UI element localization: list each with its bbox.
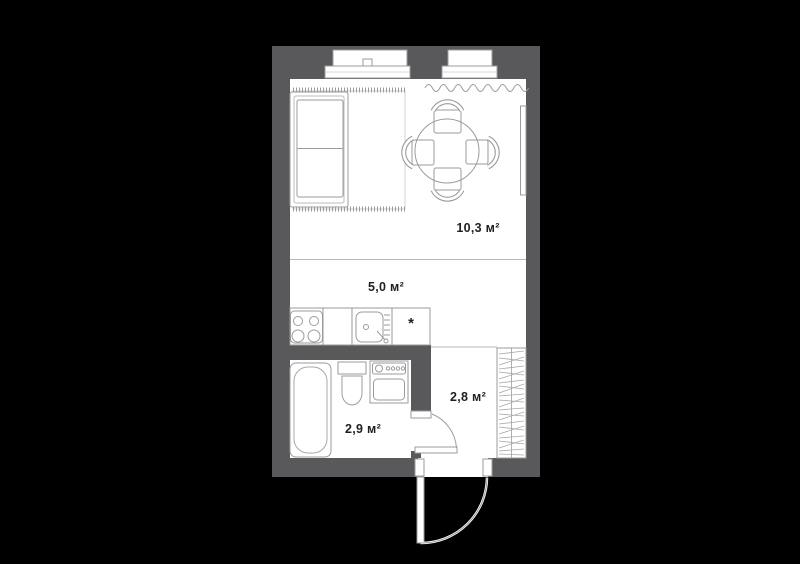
dining-chairs xyxy=(404,102,497,199)
radiator xyxy=(521,106,527,195)
dining-chair-bottom xyxy=(433,168,462,199)
curtain xyxy=(425,85,529,92)
bathroom-door xyxy=(411,411,457,453)
dining-chair-right xyxy=(466,138,497,167)
kitchen-counter-asterisk: * xyxy=(401,315,421,332)
sofa xyxy=(290,92,348,207)
washing-machine xyxy=(370,361,408,403)
bathtub xyxy=(290,363,331,457)
dining-chair-left xyxy=(404,138,434,167)
window-right xyxy=(442,50,497,78)
living-room-area-label: 10,3 м² xyxy=(438,221,518,235)
entrance-door xyxy=(415,459,492,543)
floor-plan-canvas: 10,3 м² 5,0 м² 2,9 м² 2,8 м² * xyxy=(0,0,800,564)
bathroom-area-label: 2,9 м² xyxy=(323,422,403,436)
stove xyxy=(291,311,323,343)
window-left xyxy=(325,50,410,78)
kitchen-area-label: 5,0 м² xyxy=(346,280,426,294)
hallway-area-label: 2,8 м² xyxy=(428,390,508,404)
dining-chair-top xyxy=(433,102,462,133)
toilet xyxy=(338,362,366,405)
